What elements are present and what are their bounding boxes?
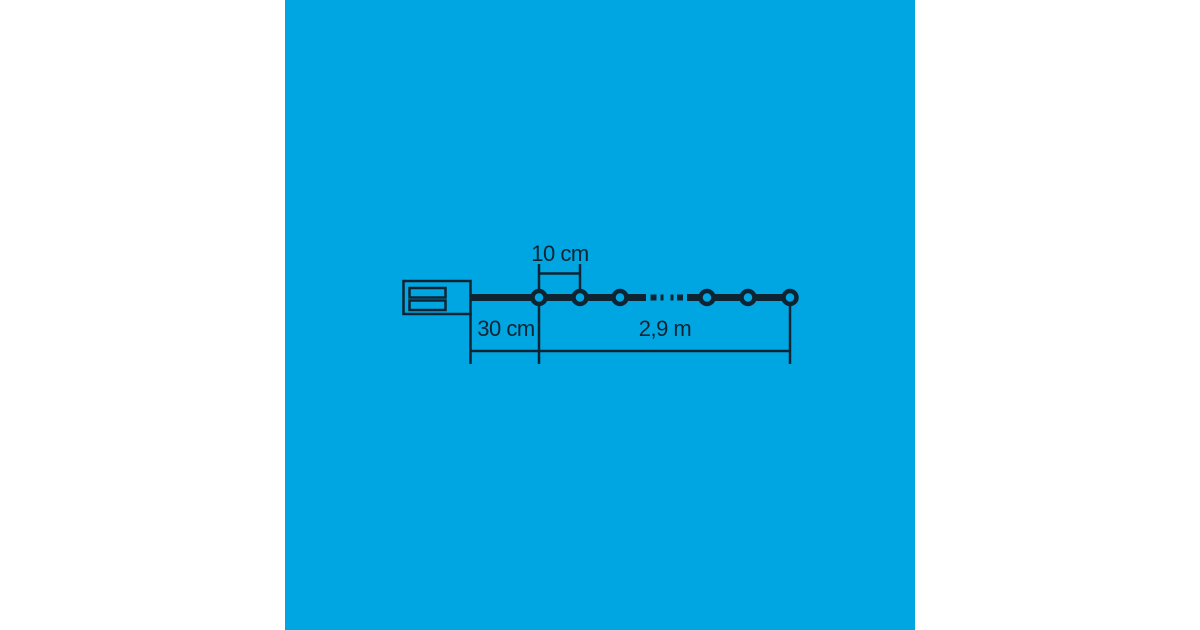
bulb-3-icon — [614, 291, 627, 304]
bulb-5-icon — [742, 291, 755, 304]
lead-length-label: 30 cm — [477, 316, 534, 341]
power-box-icon — [404, 281, 471, 314]
bulb-4-icon — [701, 291, 714, 304]
bulb-2-icon — [574, 291, 587, 304]
bulb-spacing-dimension: 10 cm — [531, 241, 588, 290]
bulb-1-icon — [533, 291, 546, 304]
bulb-spacing-label: 10 cm — [531, 241, 588, 266]
power-box-slot-bottom — [410, 301, 446, 311]
chain-length-label: 2,9 m — [639, 316, 692, 341]
bottom-dimensions: 30 cm 2,9 m — [471, 305, 791, 364]
light-chain-diagram: 10 cm 30 cm 2,9 m — [285, 0, 915, 630]
bulb-6-icon — [784, 291, 797, 304]
diagram-panel: 10 cm 30 cm 2,9 m — [285, 0, 915, 630]
power-box-slot-top — [410, 288, 446, 298]
page-canvas: 10 cm 30 cm 2,9 m — [0, 0, 1200, 630]
